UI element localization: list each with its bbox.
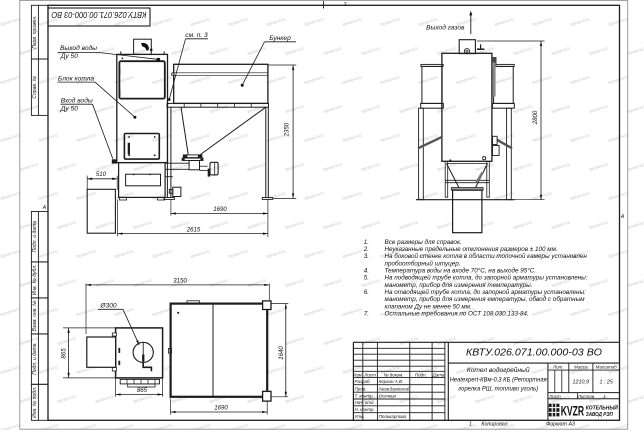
svg-text:Блок котла: Блок котла [58, 75, 94, 82]
svg-text:КОТЕЛЬНЫЙ: КОТЕЛЬНЫЙ [586, 404, 618, 412]
svg-text:Изм.: Изм. [353, 372, 363, 377]
svg-text:3.: 3. [364, 253, 369, 260]
svg-text:Ø300: Ø300 [99, 303, 116, 310]
svg-text:ЗАВОД РЭП: ЗАВОД РЭП [586, 412, 613, 418]
svg-text:Перв. примен.: Перв. примен. [32, 16, 38, 49]
svg-text:Неуказанные предельные отклоне: Неуказанные предельные отклонения размер… [385, 245, 558, 253]
svg-text:Heatexpert-КВм-0,3 КБ (Ретортн: Heatexpert-КВм-0,3 КБ (Ретортная [450, 376, 547, 383]
svg-text:На боковой стенке котла в обла: На боковой стенке котла в области топочн… [385, 252, 588, 260]
svg-text:865: 865 [137, 387, 148, 394]
svg-text:2615: 2615 [186, 226, 201, 233]
svg-text:3150: 3150 [173, 278, 187, 285]
svg-text:№ докум.: № докум. [384, 372, 404, 377]
svg-text:Инв. № подл.: Инв. № подл. [32, 387, 38, 418]
svg-text:горелка РШ, топливо уголь): горелка РШ, топливо уголь) [458, 386, 538, 393]
svg-text:6.: 6. [364, 289, 369, 296]
svg-text:Листов: Листов [577, 394, 595, 399]
svg-text:На подводящей трубе котла, до: На подводящей трубе котла, до запорной а… [385, 274, 588, 282]
svg-text:Дата: Дата [432, 372, 445, 377]
svg-text:1.: 1. [364, 239, 369, 246]
svg-text:865: 865 [60, 348, 67, 359]
svg-text:Ду 50: Ду 50 [60, 105, 79, 112]
svg-text:Выход газов: Выход газов [426, 24, 465, 32]
svg-text:КВТУ.026.071.00.000-03 ВО: КВТУ.026.071.00.000-03 ВО [466, 348, 602, 359]
svg-text:Разраб.: Разраб. [355, 379, 371, 384]
svg-text:5.: 5. [364, 275, 369, 282]
svg-text:Ду 50: Ду 50 [60, 53, 79, 60]
svg-text:Лист: Лист [548, 394, 561, 399]
svg-text:Инв. № дубл.: Инв. № дубл. [32, 265, 38, 296]
svg-text:Н. контр.: Н. контр. [355, 407, 375, 412]
svg-text:Температура воды на входе 70°С: Температура воды на входе 70°С, на выход… [385, 266, 537, 274]
svg-text:2: 2 [343, 2, 347, 8]
svg-text:Подп.: Подп. [415, 372, 427, 377]
svg-text:манометр, прибор для измерения: манометр, прибор для измерения емператур… [385, 295, 586, 303]
svg-text:Онегов-Вережинский: Онегов-Вережинский [379, 385, 410, 391]
svg-text:1 : 25: 1 : 25 [599, 380, 613, 386]
svg-text:А: А [42, 205, 47, 211]
svg-text:Лист: Лист [363, 372, 376, 377]
svg-text:Т. контр.: Т. контр. [355, 393, 374, 398]
svg-text:Пров.: Пров. [355, 386, 367, 391]
svg-text:4.: 4. [364, 267, 369, 274]
svg-text:1690: 1690 [213, 206, 227, 213]
svg-text:Кергин А.В.: Кергин А.В. [379, 379, 404, 384]
svg-text:Взам. инв. №: Взам. инв. № [32, 300, 38, 332]
svg-text:На отводящей трубе котла, до з: На отводящей трубе котла, до запорной ар… [385, 288, 587, 296]
svg-text:пробоотборный штуцер.: пробоотборный штуцер. [385, 259, 461, 267]
svg-text:Лит.: Лит. [552, 365, 564, 370]
svg-text:Все размеры для справок.: Все размеры для справок. [385, 238, 462, 246]
svg-text:Поликарпова: Поликарпова [379, 414, 407, 419]
svg-text:Копировал: Копировал [481, 421, 507, 427]
svg-text:1640: 1640 [278, 346, 285, 360]
svg-text:Подп. и дата: Подп. и дата [32, 343, 38, 375]
svg-text:2800: 2800 [532, 110, 539, 125]
svg-text:7.: 7. [364, 311, 369, 318]
svg-text:Подп. и дата: Подп. и дата [32, 221, 38, 253]
svg-text:KVZR: KVZR [561, 403, 585, 418]
svg-text:2350: 2350 [284, 122, 291, 137]
svg-text:Нач. отд: Нач. отд [355, 400, 374, 405]
svg-text:Справ. №: Справ. № [32, 75, 38, 98]
svg-text:Вход воды: Вход воды [61, 96, 93, 104]
svg-text:1690: 1690 [214, 405, 228, 412]
svg-text:Бункер: Бункер [269, 35, 291, 42]
svg-text:1: 1 [469, 421, 472, 427]
svg-text:см. п. 3: см. п. 3 [185, 32, 208, 39]
svg-text:Выход воды: Выход воды [60, 44, 97, 52]
svg-text:КВТУ.026.071.00.000-03 ВО: КВТУ.026.071.00.000-03 ВО [51, 10, 146, 20]
svg-text:510: 510 [96, 171, 107, 178]
svg-text:Масса: Масса [574, 365, 588, 370]
svg-text:Формат А3: Формат А3 [546, 421, 575, 427]
svg-text:клапаном Ду не менее 50 мм.: клапаном Ду не менее 50 мм. [385, 303, 472, 310]
svg-text:Осечкин: Осечкин [379, 393, 397, 398]
svg-text:Остальные требования по ОСТ 10: Остальные требования по ОСТ 108.030.133-… [385, 310, 529, 318]
svg-text:Котел водогрейный: Котел водогрейный [467, 366, 530, 374]
svg-text:Утв.: Утв. [355, 414, 365, 419]
svg-text:А: А [620, 214, 625, 220]
svg-text:1210,9: 1210,9 [573, 380, 590, 386]
svg-text:2.: 2. [363, 246, 369, 253]
svg-text:манометр, прибор для измерения: манометр, прибор для измерения температу… [385, 281, 533, 289]
svg-text:Масштаб: Масштаб [596, 365, 617, 370]
